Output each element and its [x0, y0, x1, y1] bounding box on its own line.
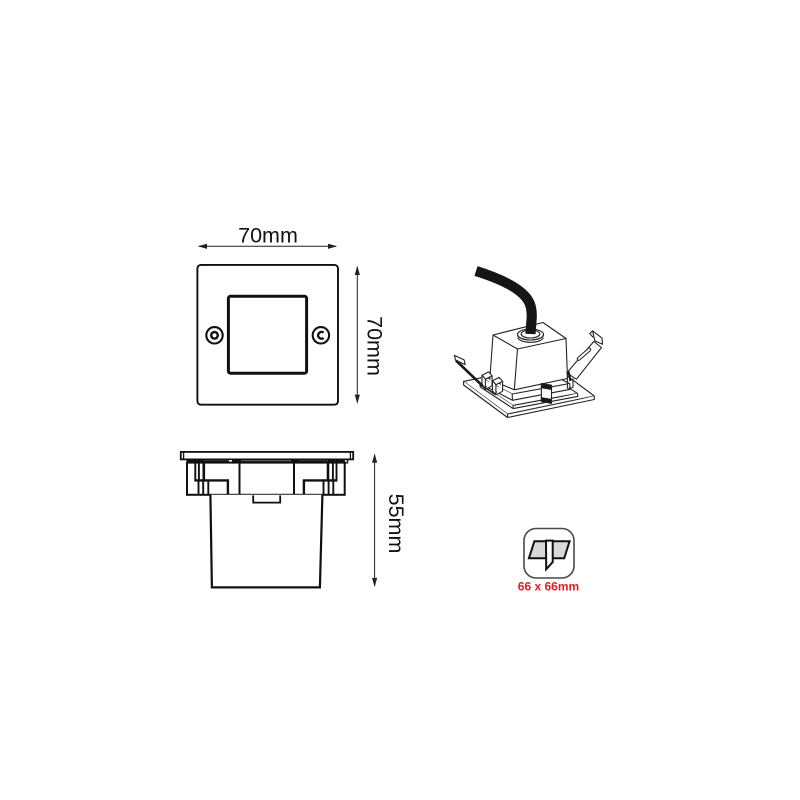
svg-text:55mm: 55mm [384, 494, 408, 554]
svg-text:66 x 66mm: 66 x 66mm [518, 580, 579, 594]
svg-text:70mm: 70mm [238, 224, 298, 248]
svg-text:70mm: 70mm [363, 316, 387, 376]
